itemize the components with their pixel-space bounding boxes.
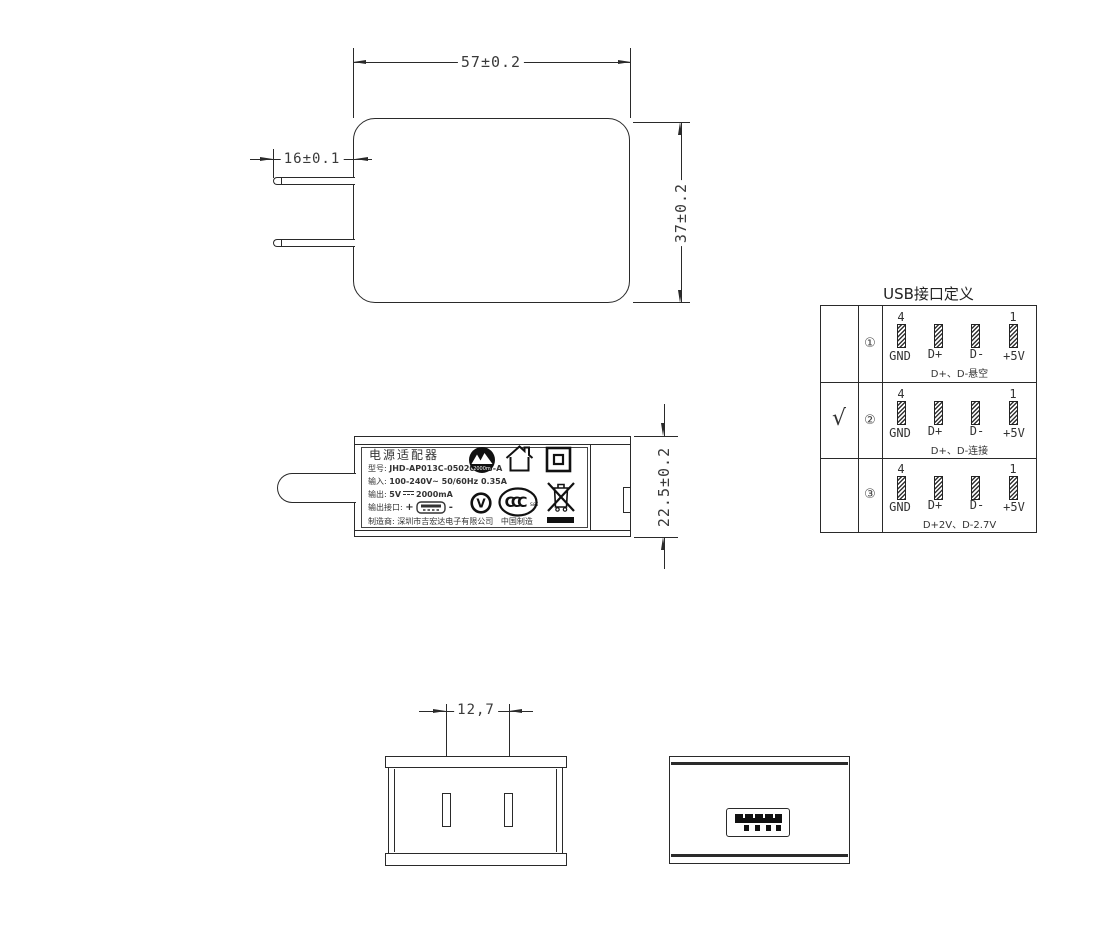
technical-drawing-canvas: 57±0.2 37±0.2 16±0.1 <box>0 0 1100 925</box>
weee-bin-icon <box>545 480 575 514</box>
dim-height-text: 37±0.2 <box>672 180 690 246</box>
origin-text: 中国制造 <box>501 517 533 526</box>
usb-face-top-band <box>671 762 848 765</box>
dim-width-ext-left <box>353 48 354 118</box>
dim-depth-arrow-bottom <box>661 537 665 550</box>
usb-pin-pad <box>776 825 781 831</box>
side-top-inner-line <box>355 444 630 445</box>
pin-label-5v: +5V <box>996 500 1032 514</box>
usb-pin-pad <box>755 825 760 831</box>
output-current: 2000mA <box>416 490 453 499</box>
pin-rect <box>1009 324 1018 348</box>
model-label: 型号: <box>368 464 387 473</box>
altitude-2000m-icon: 2000m <box>468 446 496 474</box>
plug-prong-lower <box>273 239 355 247</box>
usb-contact-tick <box>753 814 755 818</box>
plug-face-wall-right <box>556 769 557 852</box>
side-bottom-inner-line <box>355 530 630 531</box>
plug-pin-slot-right <box>504 793 513 827</box>
row3-note: D+2V、D-2.7V <box>882 516 1037 531</box>
plug-face-bottom-cap <box>385 853 567 866</box>
rating-label-title: 电源适配器 <box>369 446 439 463</box>
port-line: 输出接口: + - <box>368 501 453 514</box>
plug-prong-upper-cap <box>281 177 282 185</box>
maker-value: 深圳市吉宏达电子有限公司 <box>397 517 493 526</box>
input-value: 100-240V~ 50/60Hz 0.35A <box>389 477 507 486</box>
efficiency-v-icon: V <box>470 492 492 514</box>
plug-face-wall-left <box>394 769 395 852</box>
output-voltage: 5V <box>389 490 401 499</box>
dim-depth-arrow-top <box>661 423 665 436</box>
dim-depth-text: 22.5±0.2 <box>655 444 673 530</box>
row1-note: D+、D-悬空 <box>882 365 1037 380</box>
dim-prong-arrow-left <box>260 157 273 161</box>
row3-pin1-number: 1 <box>1005 462 1021 476</box>
dc-symbol <box>403 491 414 495</box>
pin-label-gnd: GND <box>882 500 918 514</box>
pin-rect <box>934 401 943 425</box>
pin-label-5v: +5V <box>996 426 1032 440</box>
dim-pins-arrow-left <box>433 709 446 713</box>
pin-label-dplus: D+ <box>922 498 948 512</box>
pin-label-dminus: D- <box>964 424 990 438</box>
pin-label-gnd: GND <box>882 426 918 440</box>
row2-pin1-number: 1 <box>1005 387 1021 401</box>
plug-face-body <box>388 767 563 854</box>
dim-width-arrow-right <box>618 60 631 64</box>
pin-rect <box>971 476 980 500</box>
pin-label-dminus: D- <box>964 498 990 512</box>
dim-width-arrow-left <box>353 60 366 64</box>
pinout-row-1: ① 4 1 GND D+ D- +5V D+、D-悬空 <box>820 305 1037 382</box>
dim-width-ext-right <box>630 48 631 118</box>
pin-rect <box>897 476 906 500</box>
usb-pin-pad <box>744 825 749 831</box>
port-label: 输出接口: <box>368 503 403 512</box>
ccc-mark-icon: CCC S&E <box>498 486 538 518</box>
pin-label-5v: +5V <box>996 349 1032 363</box>
maker-label: 制造商: <box>368 517 395 526</box>
usb-face-bottom-band <box>671 854 848 857</box>
plug-prong-lower-cap <box>281 239 282 247</box>
pinout-row-2: √ ② 4 1 GND D+ D- +5V D+、D-连接 <box>820 382 1037 458</box>
pin-rect <box>1009 476 1018 500</box>
pin-rect <box>897 324 906 348</box>
dim-height-arrow-bottom <box>678 290 682 303</box>
port-plus: + <box>405 502 413 513</box>
pin-rect <box>897 401 906 425</box>
pin-label-dplus: D+ <box>922 347 948 361</box>
pin-rect <box>971 324 980 348</box>
output-line: 输出: 5V2000mA <box>368 489 453 500</box>
pin-rect <box>934 476 943 500</box>
dim-depth-ext-top <box>634 436 678 437</box>
pin-label-dminus: D- <box>964 347 990 361</box>
usb-contact-tick <box>743 814 745 818</box>
dim-width-text: 57±0.2 <box>458 53 524 71</box>
usb-contact-tick <box>763 814 765 818</box>
usb-connector-icon <box>416 501 446 514</box>
row2-pin4-number: 4 <box>893 387 909 401</box>
pin-rect <box>1009 401 1018 425</box>
plug-prong-upper <box>273 177 355 185</box>
pinout-row-3: ③ 4 1 GND D+ D- +5V D+2V、D-2.7V <box>820 458 1037 533</box>
plug-pin-slot-left <box>442 793 451 827</box>
row1-pin4-number: 4 <box>893 310 909 324</box>
indoor-use-house-icon <box>503 444 536 473</box>
dim-prong-ext <box>273 149 274 178</box>
svg-text:CCC: CCC <box>505 495 528 511</box>
row2-number: ② <box>858 413 882 428</box>
dim-depth-ext-bottom <box>634 537 678 538</box>
row1-pin1-number: 1 <box>1005 310 1021 324</box>
side-plug-prong <box>277 473 356 503</box>
dim-prong-text: 16±0.1 <box>281 151 344 167</box>
row3-pin4-number: 4 <box>893 462 909 476</box>
pinout-table-title: USB接口定义 <box>820 283 1037 304</box>
pin-label-dplus: D+ <box>922 424 948 438</box>
pin-rect <box>971 401 980 425</box>
svg-text:V: V <box>476 497 486 511</box>
row3-number: ③ <box>858 487 882 502</box>
input-line: 输入: 100-240V~ 50/60Hz 0.35A <box>368 476 507 487</box>
class-ii-double-square-icon <box>545 446 572 473</box>
row2-check: √ <box>820 406 858 431</box>
pin-rect <box>934 324 943 348</box>
svg-text:S&E: S&E <box>530 502 538 508</box>
usb-contact-tick <box>773 814 775 818</box>
side-right-divider <box>590 445 591 530</box>
usb-port-profile <box>623 487 631 513</box>
dim-pins-arrow-right <box>509 709 522 713</box>
usb-pin-pad <box>766 825 771 831</box>
weee-bar <box>547 517 574 523</box>
dim-height-arrow-top <box>678 122 682 135</box>
adapter-body-front <box>353 118 630 303</box>
dim-prong-arrow-right <box>355 157 368 161</box>
pin-label-gnd: GND <box>882 349 918 363</box>
svg-text:2000m: 2000m <box>473 466 491 472</box>
row2-note: D+、D-连接 <box>882 442 1037 457</box>
port-minus: - <box>449 502 453 513</box>
row1-number: ① <box>858 336 882 351</box>
input-label: 输入: <box>368 477 387 486</box>
dim-pins-text: 12,7 <box>454 702 498 718</box>
output-label: 输出: <box>368 490 387 499</box>
